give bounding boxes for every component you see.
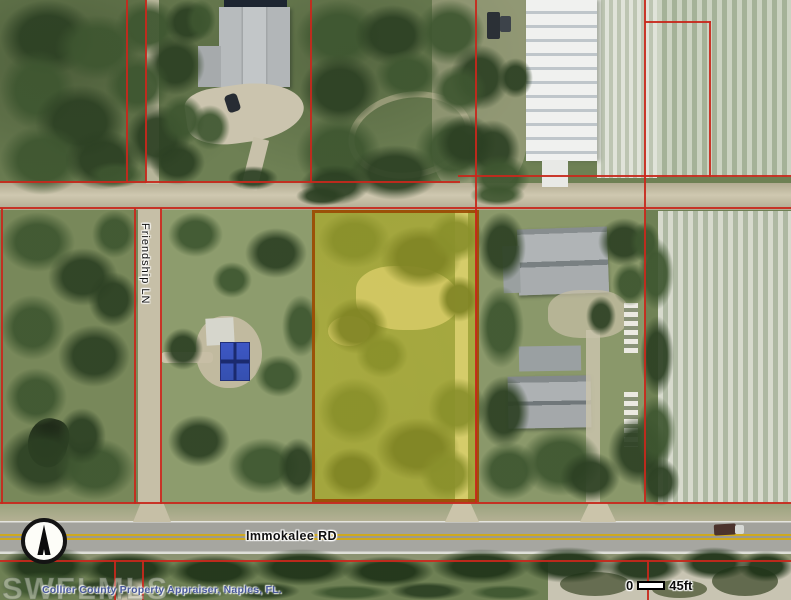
north-arrow-icon [29, 524, 59, 557]
scale-distance: 45ft [669, 578, 692, 593]
compass [21, 518, 67, 564]
parcel-line [475, 0, 477, 503]
parcel-line [310, 0, 312, 183]
road-label-friendship-ln: Friendship LN [139, 223, 151, 304]
parcel-line [0, 502, 791, 504]
parcel-line [145, 0, 147, 183]
parcel-line [709, 21, 711, 177]
parcel-line [458, 175, 791, 177]
scale-start: 0 [626, 578, 633, 593]
parcel-line [644, 0, 646, 503]
parcel-boundaries [0, 0, 791, 600]
parcel-line [1, 208, 3, 504]
parcel-line [0, 560, 791, 562]
parcel-line [126, 0, 128, 183]
scale-bar-segment [637, 581, 665, 590]
aerial-map[interactable]: Friendship LN Immokalee RD 0 45ft SWFLML… [0, 0, 791, 600]
attribution-text: Collier County Property Appraiser, Naple… [42, 584, 282, 596]
scale-bar: 0 45ft [626, 578, 692, 593]
road-label-immokalee-rd: Immokalee RD [246, 529, 337, 543]
parcel-line [0, 181, 460, 183]
parcel-line [160, 208, 162, 504]
parcel-line [0, 207, 791, 209]
parcel-line [134, 208, 136, 504]
parcel-line [645, 21, 711, 23]
